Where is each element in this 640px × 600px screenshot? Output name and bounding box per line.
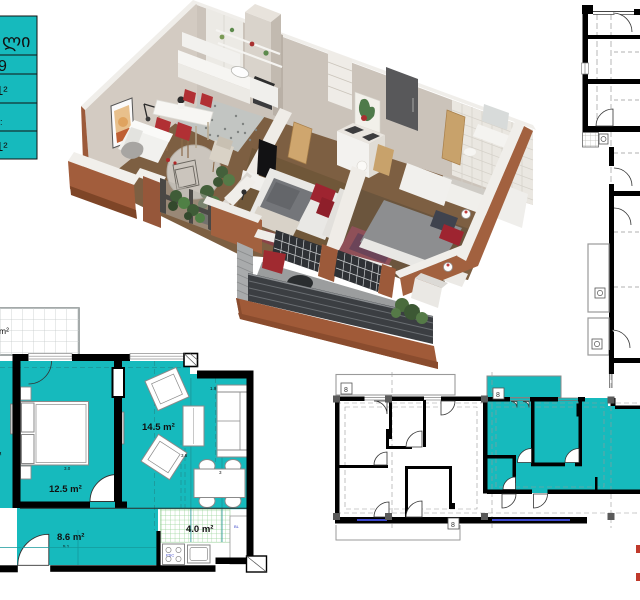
svg-text:3.6: 3.6: [181, 453, 188, 458]
svg-text:12.5 m²: 12.5 m²: [49, 484, 82, 495]
svg-text:PSC: PSC: [166, 553, 174, 558]
svg-text:5.1: 5.1: [63, 544, 70, 549]
svg-text:8: 8: [344, 387, 348, 394]
svg-text:8.6 m²: 8.6 m²: [57, 532, 84, 543]
svg-text:8: 8: [496, 392, 500, 399]
svg-text:1²: 1²: [0, 139, 8, 154]
svg-text:14.5 m²: 14.5 m²: [142, 422, 175, 433]
svg-text:m²: m²: [0, 450, 2, 460]
svg-text:8: 8: [451, 522, 455, 529]
svg-text::: :: [0, 117, 3, 127]
svg-text:ლი: ლი: [2, 31, 30, 52]
svg-text:3.0: 3.0: [64, 466, 71, 471]
svg-text:1.9: 1.9: [210, 386, 217, 391]
svg-text:m²: m²: [0, 326, 9, 336]
svg-text:4.0 m²: 4.0 m²: [186, 524, 213, 535]
svg-text:9: 9: [0, 58, 7, 75]
svg-text:1²: 1²: [0, 83, 8, 98]
svg-text:BL: BL: [234, 524, 240, 529]
